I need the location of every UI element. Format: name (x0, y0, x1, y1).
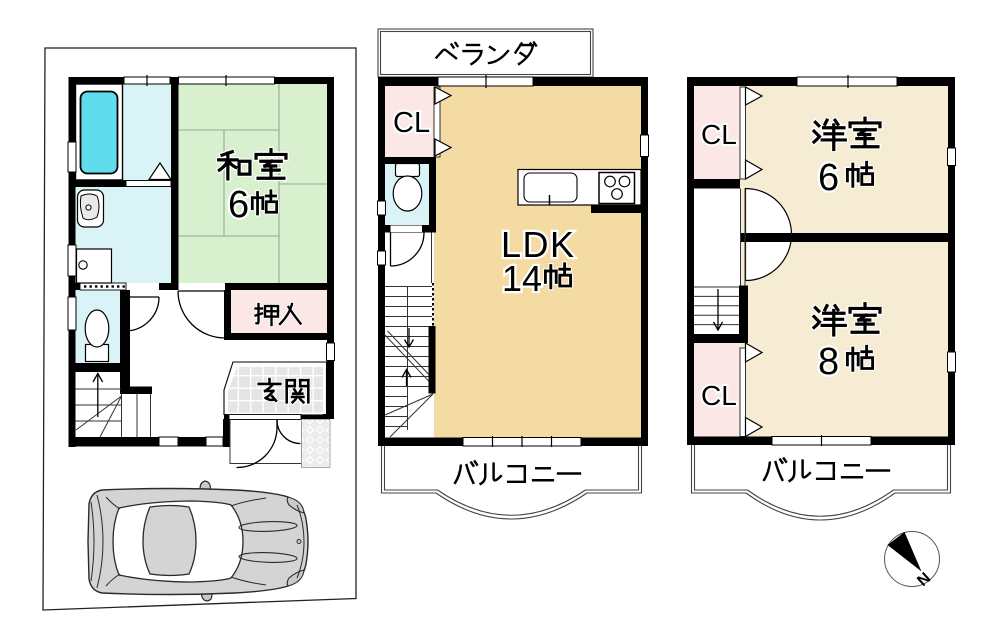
svg-text:CL: CL (701, 119, 737, 150)
svg-text:8: 8 (818, 341, 839, 383)
svg-text:CL: CL (393, 107, 430, 139)
svg-text:CL: CL (701, 380, 737, 411)
svg-text:14: 14 (502, 258, 542, 299)
svg-text:6: 6 (818, 157, 839, 199)
svg-text:6: 6 (228, 184, 249, 226)
